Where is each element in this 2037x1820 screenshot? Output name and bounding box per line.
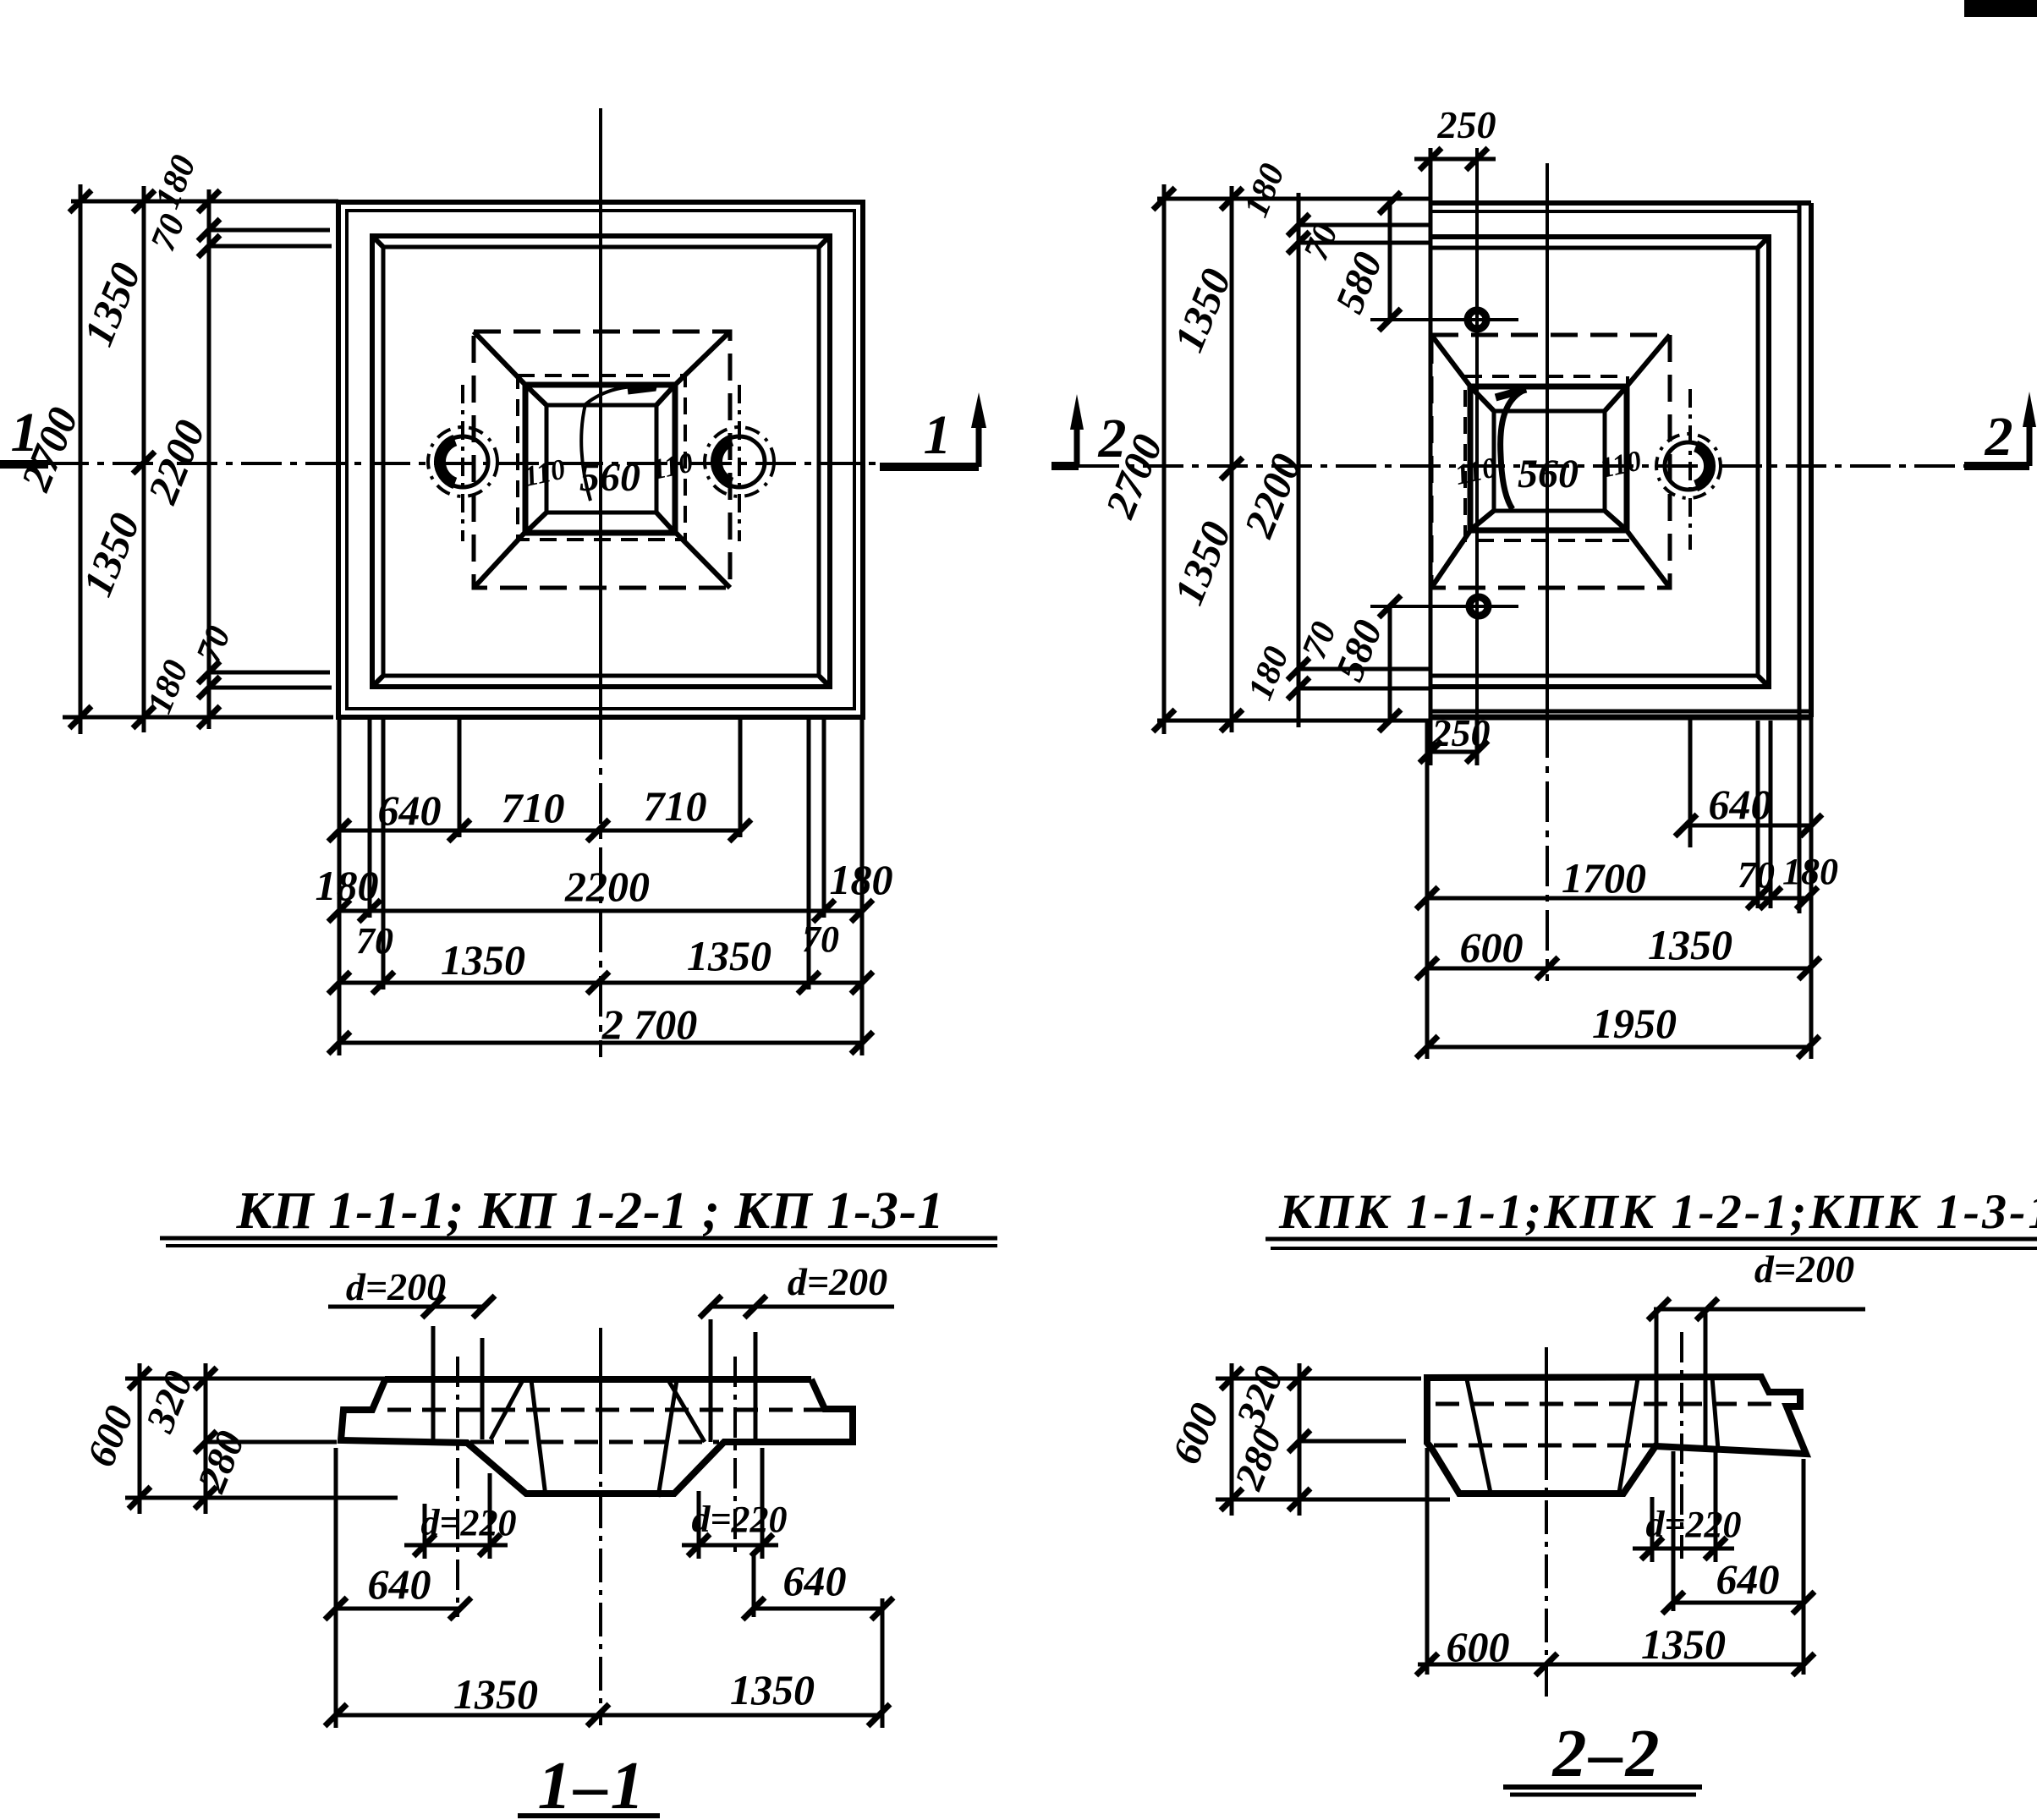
svg-text:d=200: d=200 [1754, 1247, 1854, 1291]
svg-text:180: 180 [830, 856, 893, 903]
svg-text:180: 180 [316, 862, 379, 909]
svg-text:560: 560 [579, 455, 640, 500]
svg-text:640: 640 [783, 1557, 847, 1604]
svg-text:d=200: d=200 [788, 1260, 887, 1303]
svg-text:180: 180 [1782, 851, 1838, 892]
svg-text:1350: 1350 [1641, 1620, 1726, 1668]
svg-text:d=220: d=220 [1645, 1504, 1741, 1545]
svg-text:640: 640 [368, 1560, 431, 1608]
svg-text:1: 1 [924, 404, 952, 466]
svg-text:70: 70 [356, 920, 393, 962]
svg-text:1700: 1700 [1562, 854, 1646, 902]
svg-text:d=200: d=200 [346, 1265, 446, 1308]
svg-text:560: 560 [1518, 452, 1579, 496]
svg-text:1–1: 1–1 [538, 1749, 647, 1820]
svg-text:1350: 1350 [687, 932, 771, 979]
svg-text:710: 710 [502, 784, 565, 831]
svg-text:710: 710 [644, 782, 707, 830]
svg-text:600: 600 [1460, 924, 1524, 971]
svg-text:1350: 1350 [730, 1666, 815, 1713]
svg-text:КП 1-1-1; КП 1-2-1 ; КП 1-3-1: КП 1-1-1; КП 1-2-1 ; КП 1-3-1 [236, 1182, 945, 1240]
svg-text:2200: 2200 [564, 863, 650, 910]
svg-text:1350: 1350 [1648, 921, 1732, 968]
svg-text:d=220: d=220 [691, 1499, 787, 1540]
svg-text:2–2: 2–2 [1552, 1717, 1662, 1791]
svg-text:КПК 1-1-1;КПК 1-2-1;КПК 1-3-1: КПК 1-1-1;КПК 1-2-1;КПК 1-3-1 [1278, 1184, 2037, 1239]
svg-text:2 700: 2 700 [601, 1000, 698, 1048]
svg-text:d=220: d=220 [420, 1502, 516, 1543]
svg-text:600: 600 [1447, 1623, 1510, 1670]
svg-text:1950: 1950 [1592, 1000, 1677, 1047]
svg-text:1350: 1350 [441, 936, 525, 984]
svg-text:70: 70 [802, 918, 839, 960]
svg-text:640: 640 [1709, 781, 1772, 828]
svg-text:70: 70 [1738, 854, 1775, 896]
svg-text:250: 250 [1431, 711, 1491, 754]
svg-text:2: 2 [1985, 406, 2013, 468]
svg-text:1350: 1350 [453, 1670, 538, 1718]
svg-text:250: 250 [1437, 103, 1496, 146]
svg-text:640: 640 [1716, 1555, 1780, 1603]
svg-text:640: 640 [378, 787, 442, 834]
